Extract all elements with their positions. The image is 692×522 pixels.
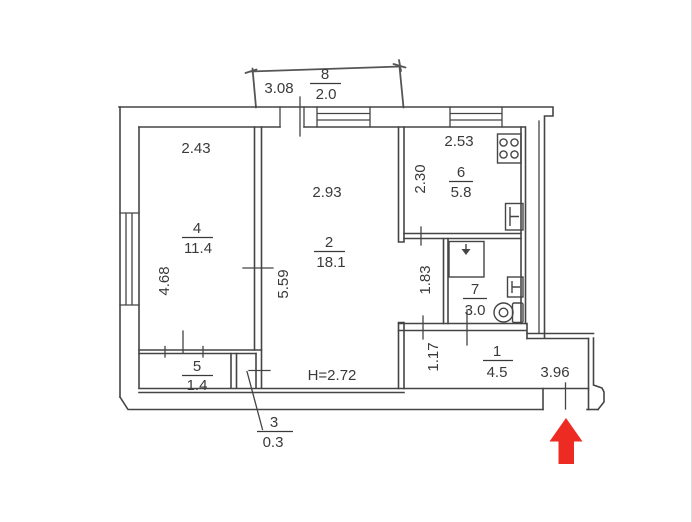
dim-hall-depth: 1.17 bbox=[425, 342, 442, 371]
floor-plan-page: 3.08 2.43 2.93 2.53 2.30 4.68 5.59 1.83 … bbox=[0, 0, 692, 522]
dim-corridor-depth: 1.83 bbox=[417, 265, 434, 294]
room-5-area: 1.4 bbox=[187, 377, 208, 394]
interior-walls bbox=[139, 127, 594, 393]
room-3-number: 3 bbox=[270, 414, 278, 431]
stove-icon bbox=[498, 134, 522, 163]
room-1-area: 4.5 bbox=[487, 364, 508, 381]
dim-kitchen-depth: 2.30 bbox=[412, 164, 429, 193]
room-2-number: 2 bbox=[325, 234, 333, 251]
room-3-area: 0.3 bbox=[263, 434, 284, 451]
balcony-door bbox=[280, 97, 304, 136]
window-room4 bbox=[120, 213, 139, 305]
room-6-area: 5.8 bbox=[451, 184, 472, 201]
dim-room2-depth: 5.59 bbox=[275, 269, 292, 298]
dim-room4-depth: 4.68 bbox=[156, 266, 173, 295]
room-7-number: 7 bbox=[471, 281, 479, 298]
toilet-icon bbox=[494, 303, 523, 323]
room-8-area: 2.0 bbox=[316, 86, 337, 103]
label-room-2: 2 18.1 bbox=[314, 234, 346, 271]
dim-room2-width: 2.93 bbox=[312, 184, 341, 201]
window-kitchen bbox=[450, 107, 502, 127]
label-room-6: 6 5.8 bbox=[449, 164, 473, 201]
room-5-number: 5 bbox=[193, 358, 201, 375]
label-room-7: 7 3.0 bbox=[463, 281, 487, 319]
label-room-3: 3 0.3 bbox=[257, 414, 293, 451]
room3-leader-line bbox=[247, 372, 263, 430]
room-1-number: 1 bbox=[493, 343, 501, 360]
label-room-8: 8 2.0 bbox=[310, 66, 341, 103]
label-room-4: 4 11.4 bbox=[182, 220, 213, 257]
label-room-1: 1 4.5 bbox=[483, 343, 513, 381]
room-6-number: 6 bbox=[457, 164, 465, 181]
dim-balcony-width: 3.08 bbox=[264, 80, 293, 97]
dim-room4-width: 2.43 bbox=[181, 140, 210, 157]
entrance-arrow bbox=[550, 418, 583, 464]
dim-kitchen-width: 2.53 bbox=[444, 133, 473, 150]
room-8-number: 8 bbox=[321, 66, 329, 83]
shower-icon bbox=[449, 242, 484, 278]
room-4-number: 4 bbox=[193, 220, 201, 237]
ceiling-height-note: H=2.72 bbox=[308, 367, 357, 384]
room-2-area: 18.1 bbox=[316, 254, 345, 271]
floor-plan-canvas: 3.08 2.43 2.93 2.53 2.30 4.68 5.59 1.83 … bbox=[0, 0, 692, 522]
window-room2 bbox=[317, 107, 370, 127]
dim-hall-width: 3.96 bbox=[540, 364, 569, 381]
room-7-area: 3.0 bbox=[465, 302, 486, 319]
room-4-area: 11.4 bbox=[184, 240, 212, 257]
